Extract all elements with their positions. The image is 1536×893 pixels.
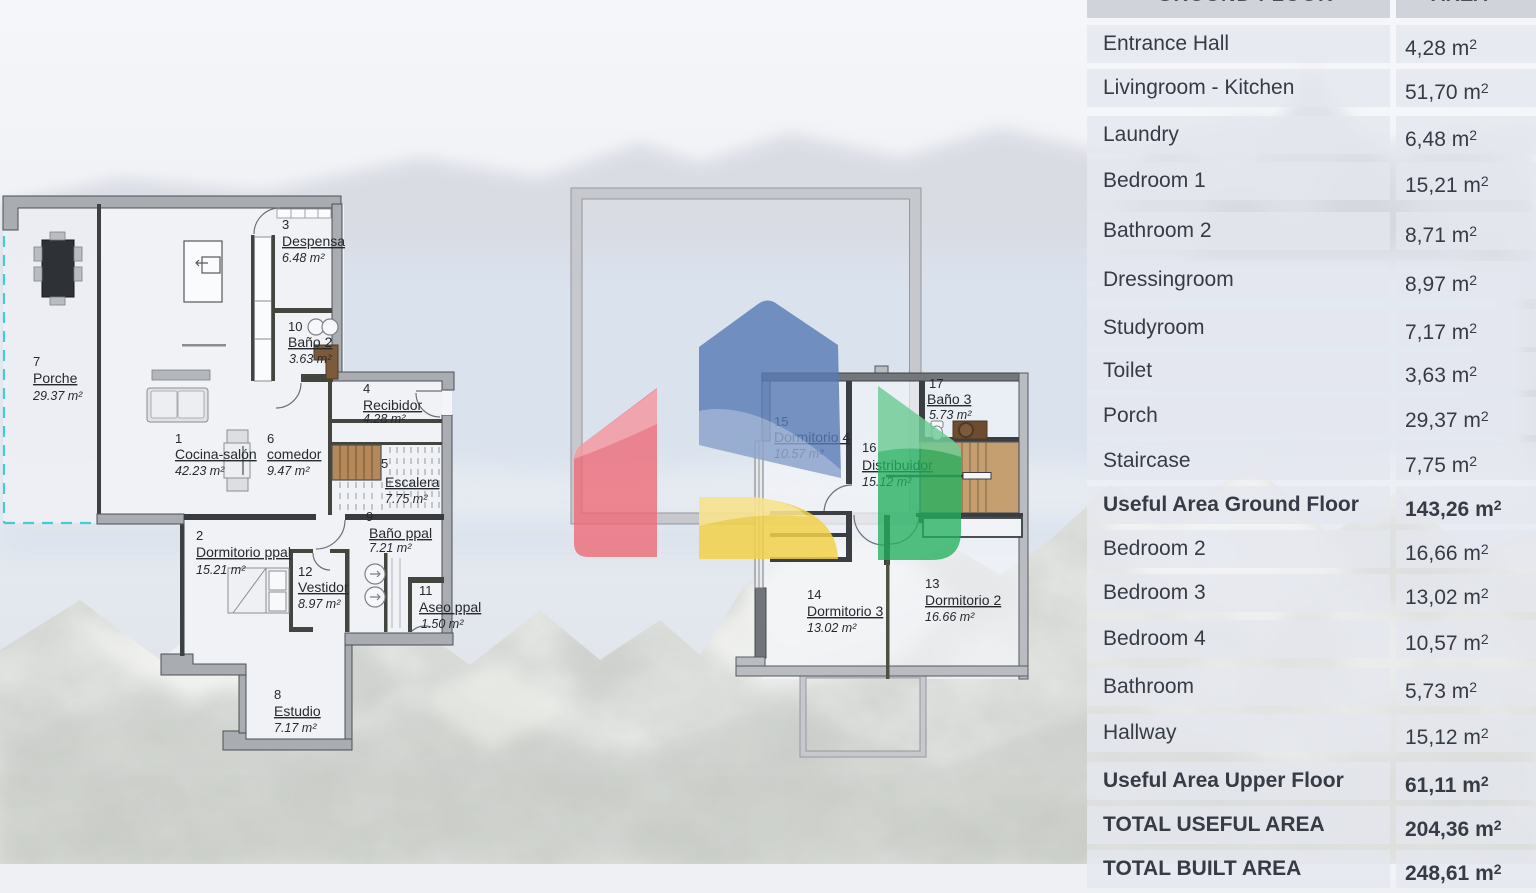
svg-text:Recibidor: Recibidor <box>363 397 422 413</box>
svg-text:Baño ppal: Baño ppal <box>369 525 432 541</box>
svg-text:comedor: comedor <box>267 446 322 462</box>
svg-text:1.50 m²: 1.50 m² <box>421 617 464 631</box>
svg-text:7.75 m²: 7.75 m² <box>385 492 428 506</box>
svg-text:Escalera: Escalera <box>385 474 440 490</box>
svg-text:Dormitorio 2: Dormitorio 2 <box>925 592 1001 608</box>
svg-text:5.73 m²: 5.73 m² <box>929 408 972 422</box>
svg-text:8: 8 <box>274 687 281 702</box>
svg-text:Cocina-salón: Cocina-salón <box>175 446 257 462</box>
svg-text:3: 3 <box>282 217 289 232</box>
svg-text:13: 13 <box>925 576 939 591</box>
svg-text:Vestidor: Vestidor <box>298 579 349 595</box>
svg-text:Despensa: Despensa <box>282 233 345 249</box>
svg-text:42.23 m²: 42.23 m² <box>175 464 225 478</box>
svg-text:15.21 m²: 15.21 m² <box>196 563 246 577</box>
svg-text:14: 14 <box>807 587 821 602</box>
svg-text:Dormitorio 3: Dormitorio 3 <box>807 603 883 619</box>
svg-text:29.37 m²: 29.37 m² <box>32 389 83 403</box>
svg-text:9.47 m²: 9.47 m² <box>267 464 310 478</box>
svg-text:12: 12 <box>298 564 312 579</box>
svg-text:Dormitorio ppal: Dormitorio ppal <box>196 544 291 560</box>
svg-text:17: 17 <box>929 376 943 391</box>
svg-text:Estudio: Estudio <box>274 703 321 719</box>
svg-text:4: 4 <box>363 381 370 396</box>
svg-text:8.97 m²: 8.97 m² <box>298 597 341 611</box>
svg-text:1: 1 <box>175 431 182 446</box>
svg-text:6.48 m²: 6.48 m² <box>282 251 325 265</box>
svg-text:7.21 m²: 7.21 m² <box>369 541 412 555</box>
svg-text:7: 7 <box>33 354 40 369</box>
svg-text:2: 2 <box>196 528 203 543</box>
svg-text:Aseo ppal: Aseo ppal <box>419 599 481 615</box>
svg-text:10: 10 <box>288 319 302 334</box>
svg-text:16.66 m²: 16.66 m² <box>925 610 975 624</box>
svg-text:11: 11 <box>419 583 433 598</box>
svg-text:4.28 m²: 4.28 m² <box>363 412 406 426</box>
svg-text:5: 5 <box>381 456 388 471</box>
svg-text:Baño 2: Baño 2 <box>288 334 333 350</box>
svg-text:3.63 m²: 3.63 m² <box>289 352 332 366</box>
svg-text:6: 6 <box>267 431 274 446</box>
svg-text:16: 16 <box>862 440 876 455</box>
svg-text:Porche: Porche <box>33 370 78 386</box>
svg-text:Baño 3: Baño 3 <box>927 391 972 407</box>
svg-text:9: 9 <box>366 509 373 524</box>
svg-text:7.17 m²: 7.17 m² <box>274 721 317 735</box>
svg-text:13.02 m²: 13.02 m² <box>807 621 857 635</box>
